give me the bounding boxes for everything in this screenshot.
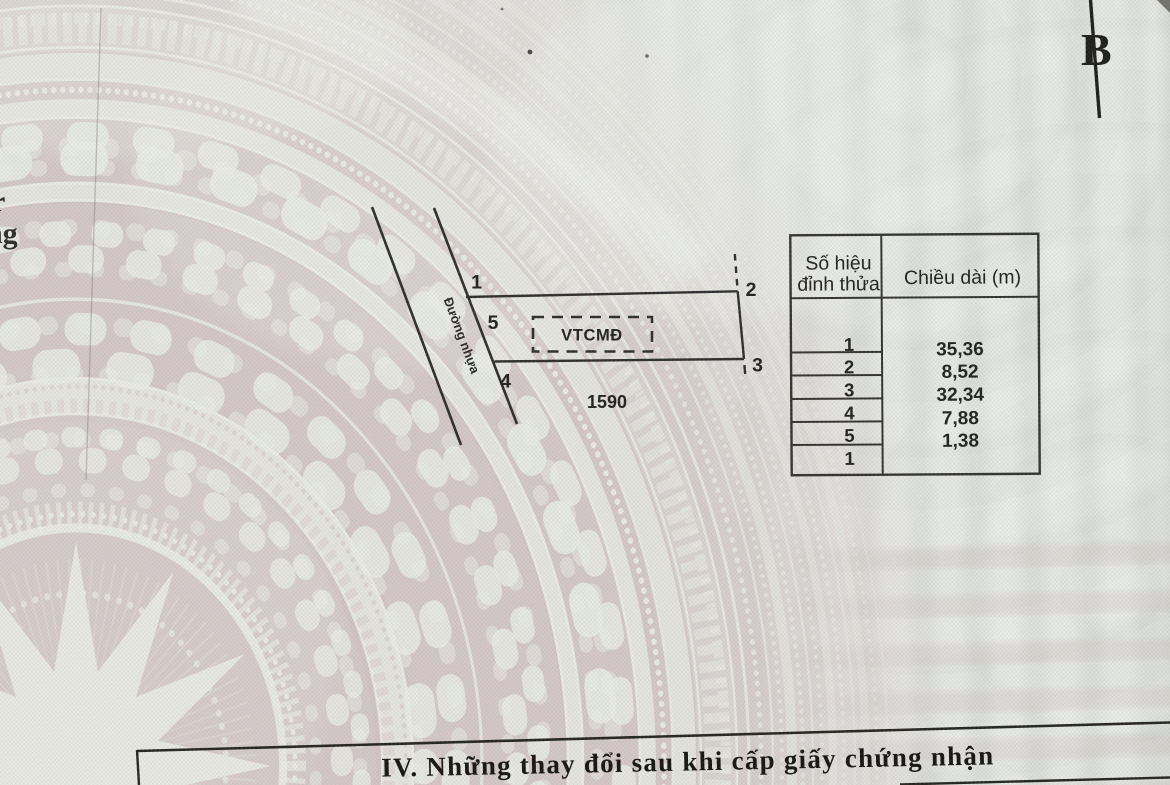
svg-text:2: 2 [746,279,757,301]
svg-text:B: B [1081,24,1112,75]
svg-text:ng: ng [0,217,18,250]
svg-text:4: 4 [500,371,511,393]
svg-text:r: r [0,185,5,218]
svg-text:8,52: 8,52 [942,362,979,383]
svg-text:Số hiệu: Số hiệu [805,252,871,274]
svg-text:1590: 1590 [587,392,627,412]
svg-text:2: 2 [844,356,854,377]
svg-text:4: 4 [844,402,855,423]
svg-text:Chiều dài (m): Chiều dài (m) [904,266,1021,289]
svg-text:1: 1 [471,272,482,294]
svg-text:5: 5 [488,312,499,334]
svg-text:7,88: 7,88 [942,408,979,429]
svg-text:32,34: 32,34 [936,385,984,406]
svg-text:1: 1 [844,448,854,469]
svg-text:5: 5 [844,425,854,446]
svg-text:VTCMĐ: VTCMĐ [561,327,623,345]
svg-text:3: 3 [752,355,763,377]
svg-text:1,38: 1,38 [942,431,979,452]
svg-text:3: 3 [844,379,854,400]
svg-text:1: 1 [844,334,854,355]
svg-text:35,36: 35,36 [936,339,984,360]
svg-text:đỉnh thửa: đỉnh thửa [797,273,880,296]
